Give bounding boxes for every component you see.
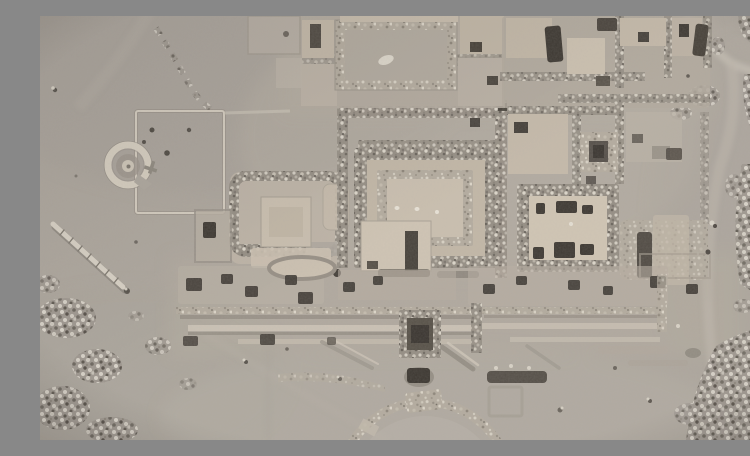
- aerial-photo: [40, 16, 750, 440]
- vignette: [40, 16, 750, 440]
- aerial-photo-canvas: [40, 16, 750, 440]
